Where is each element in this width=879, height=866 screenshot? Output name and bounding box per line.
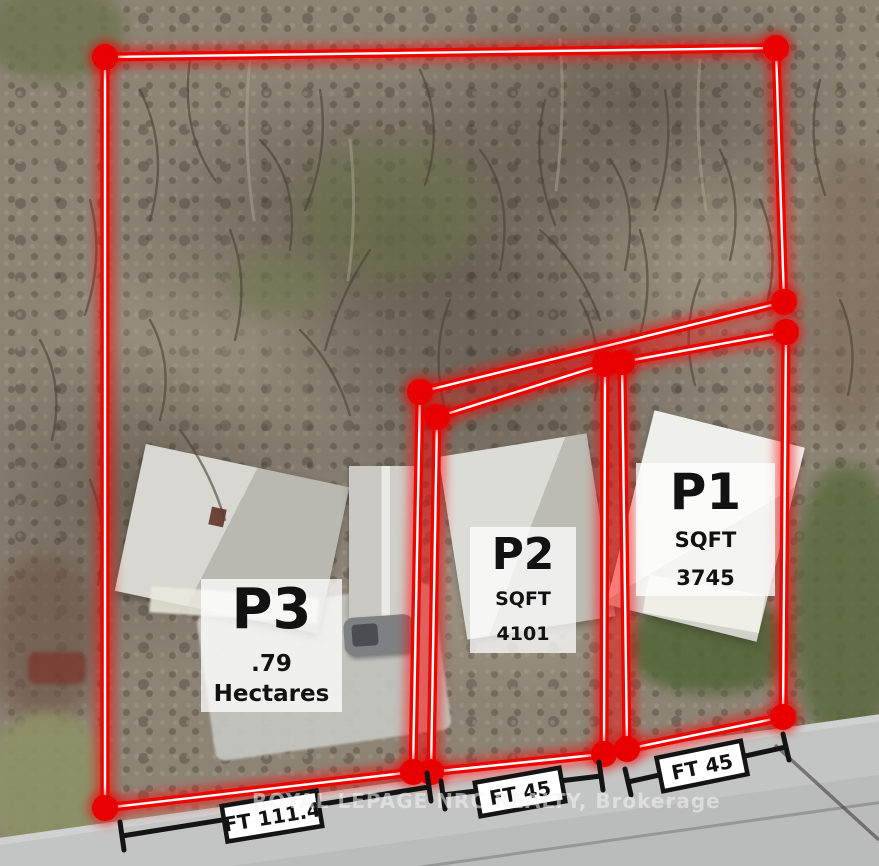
reddish-brush-left xyxy=(0,555,100,725)
parcel-label-p3: P3 .79 Hectares xyxy=(201,579,342,712)
parcel-area-value-p1: 3745 xyxy=(676,565,734,592)
red-car xyxy=(28,652,86,684)
p3-second-house xyxy=(349,466,417,618)
suv-windshield xyxy=(351,623,378,647)
parcel-area-value-p2: 4101 xyxy=(497,622,550,647)
parcel-id-p1: P1 xyxy=(670,467,741,517)
parcel-area-p3: .79 Hectares xyxy=(201,650,342,710)
aerial-photo-canvas: FT 111.4 FT 45 FT 45 P3 .79 Hectares P2 … xyxy=(0,0,879,866)
parcel-area-unit-p1: SQFT xyxy=(675,527,737,554)
parcel-label-p2: P2 SQFT 4101 xyxy=(470,527,576,653)
parcel-area-unit-p2: SQFT xyxy=(495,587,551,612)
green-patch-top-middle xyxy=(300,140,480,280)
green-bank-right xyxy=(792,465,879,745)
parcel-id-p3: P3 xyxy=(231,582,311,638)
parcel-label-p1: P1 SQFT 3745 xyxy=(636,463,775,596)
brown-patch-right xyxy=(798,150,879,430)
brokerage-watermark: ROYAL LEPAGE NRC REALTY, Brokerage xyxy=(252,789,721,813)
green-patch-mid-left xyxy=(228,252,333,317)
parcel-id-p2: P2 xyxy=(492,533,555,577)
